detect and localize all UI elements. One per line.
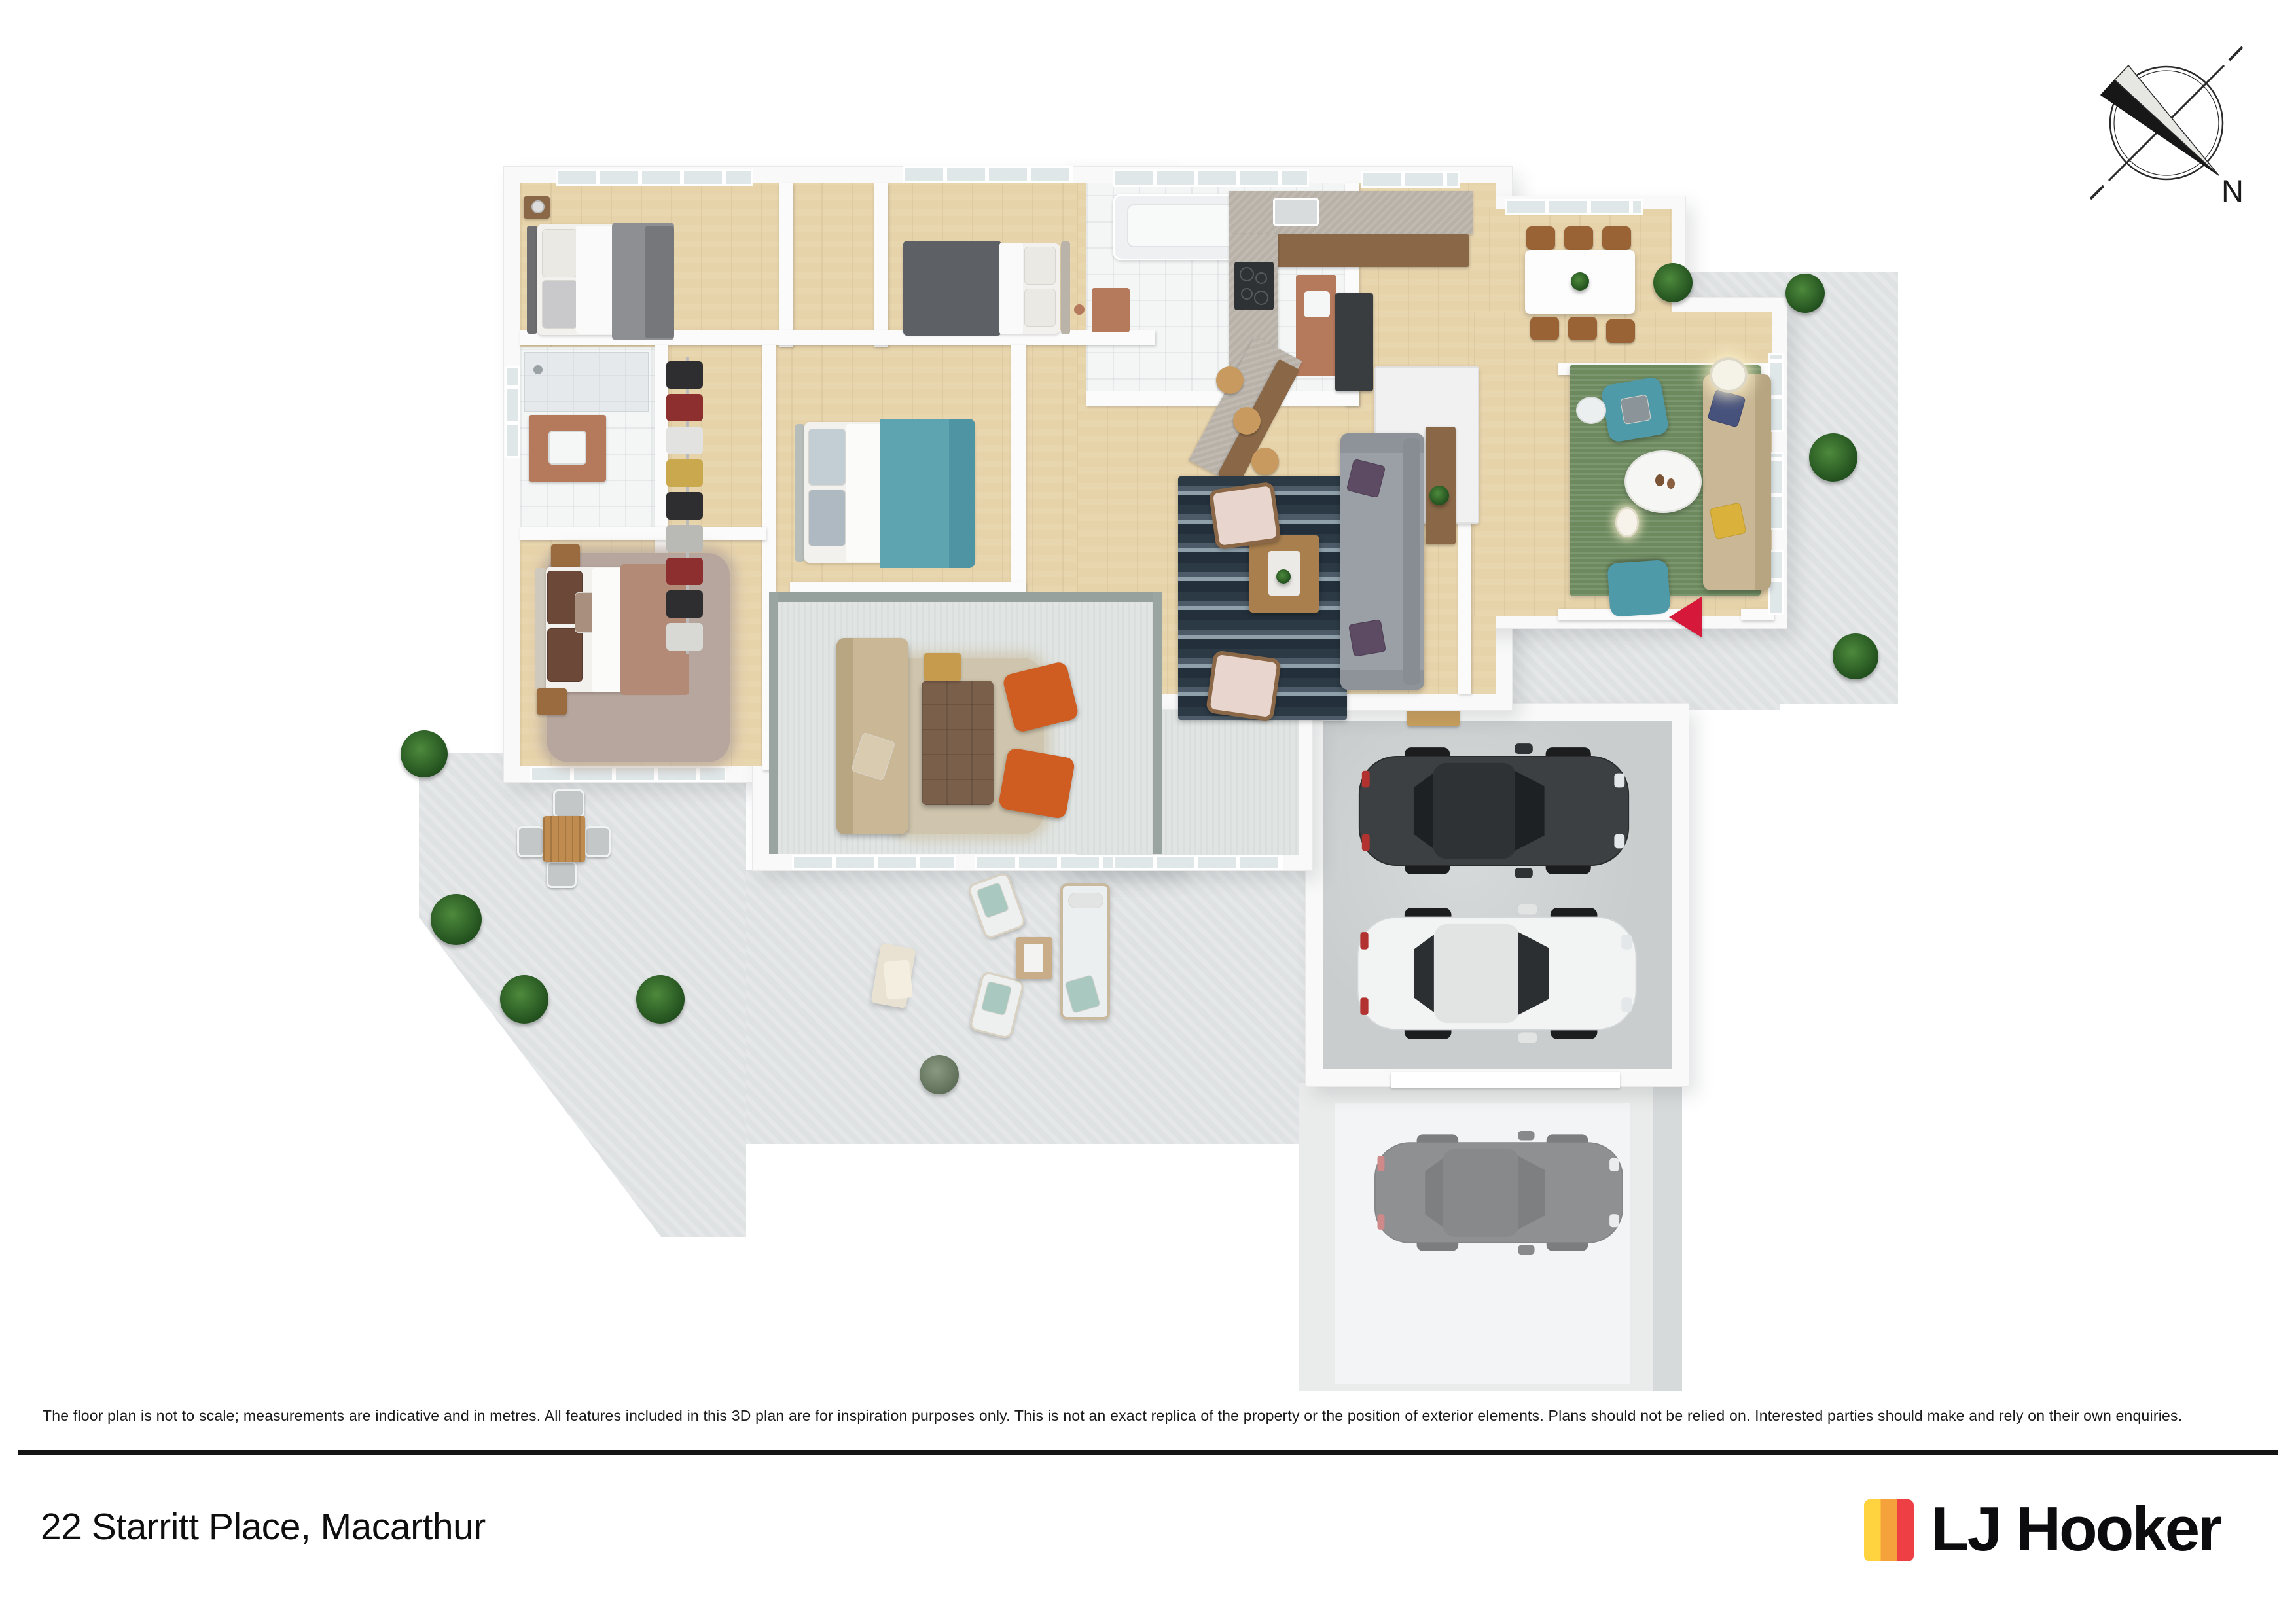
garden-sculpture-top (883, 959, 913, 1000)
throw (645, 226, 674, 338)
patio-table (543, 816, 585, 862)
sunroom-sofa (836, 638, 908, 834)
cooktop (1234, 262, 1274, 310)
shower (524, 352, 649, 412)
pillow-grey (1620, 394, 1651, 425)
window-bed2 (903, 166, 1073, 183)
nightstand-cube (551, 544, 580, 568)
compass-tick-ne (2229, 47, 2242, 60)
garment (666, 558, 703, 585)
wall-bed3-east (1011, 345, 1026, 597)
tray-plant (1276, 569, 1291, 584)
patio-center (746, 870, 1306, 1144)
pillow-purple (1348, 619, 1386, 657)
dining-chair (1602, 226, 1631, 250)
outdoor-coffee-table (1016, 937, 1052, 979)
teal-armchair (1607, 560, 1670, 617)
nightstand-cube (537, 688, 567, 715)
kitchen-sink (1273, 198, 1319, 226)
potted-plant (1653, 263, 1693, 302)
basin (1304, 291, 1330, 317)
pillow (1024, 289, 1056, 327)
bedroom1-bed (520, 193, 691, 344)
round-coffee-table (1624, 450, 1702, 513)
patio-chair (584, 826, 611, 857)
headboard (535, 568, 546, 689)
pillow (542, 229, 577, 277)
duvet-teal-fold (949, 419, 975, 568)
pillow-mint (976, 882, 1009, 919)
pillow-mint (981, 981, 1013, 1016)
table-plant (1571, 272, 1589, 291)
dining-chair (1526, 226, 1555, 250)
pillow-patterned (808, 429, 846, 486)
bar-stool (1216, 366, 1244, 394)
garment (666, 394, 703, 421)
table-tray (1024, 944, 1043, 972)
car-garage-white (1350, 900, 1644, 1047)
car-driveway (1368, 1126, 1630, 1260)
pillow-patterned (808, 490, 846, 546)
pillow-navy (1707, 389, 1746, 427)
dining-chair (1564, 226, 1593, 250)
pillow-brown (547, 628, 583, 682)
family-armchair (1206, 650, 1282, 722)
wall-master-north (520, 527, 766, 540)
bar-stool (1233, 407, 1261, 435)
garment (666, 361, 703, 389)
bedroom3-bed (793, 416, 986, 569)
decor-item (1655, 474, 1664, 486)
family-coffee-table (1249, 535, 1319, 613)
sofa-back (836, 638, 853, 834)
property-address: 22 Starritt Place, Macarthur (41, 1505, 486, 1548)
window-bed1 (556, 169, 753, 186)
potted-plant-grey (920, 1055, 959, 1094)
floorplan-render (0, 0, 2296, 1623)
pillow-yellow (1710, 503, 1747, 540)
kitchen-counter-top (1229, 191, 1473, 234)
pillow (851, 732, 896, 781)
sheet (846, 424, 882, 562)
patio-chair (517, 826, 545, 857)
garment (666, 427, 703, 454)
basin (548, 431, 586, 465)
compass-needle-dark (2101, 80, 2219, 175)
wall-hall-right (874, 183, 888, 347)
potted-plant (1833, 633, 1878, 679)
lj-hooker-logo-text: LJ Hooker (1931, 1493, 2220, 1565)
window-kitchen (1361, 171, 1460, 188)
compass-tick-sw (2090, 186, 2104, 199)
window-west (505, 366, 520, 458)
burner (1241, 288, 1253, 300)
lj-hooker-logo-mark (1864, 1499, 1914, 1561)
sofa-back (1755, 374, 1771, 590)
bedroom2-bed (893, 239, 1090, 337)
garment (666, 525, 703, 552)
ensuite2-vanity (1092, 288, 1130, 332)
dining-chair (1568, 317, 1597, 340)
headboard (527, 226, 537, 334)
dining-chair (1530, 317, 1559, 340)
window-bathroom (1113, 169, 1309, 187)
potted-plant (431, 894, 482, 945)
burner (1255, 272, 1267, 284)
compass: N (2081, 26, 2278, 223)
garment (666, 459, 703, 487)
shower-head (533, 365, 543, 374)
garment (666, 623, 703, 651)
family-sofa (1340, 433, 1424, 690)
console-plant (1429, 486, 1449, 505)
entry-porch (1496, 625, 1780, 710)
burner (1240, 267, 1254, 281)
dining-chair (1606, 319, 1635, 343)
wall-hall-left (779, 183, 793, 347)
window-master (530, 766, 726, 782)
potted-plant (1785, 274, 1825, 313)
outdoor-sofa (1060, 883, 1110, 1020)
disclaimer-text: The floor plan is not to scale; measurem… (43, 1407, 2182, 1425)
orange-armchair (998, 747, 1076, 820)
duvet-dark (903, 241, 1001, 336)
floorplan-page: N The floor plan is not to scale; measur… (0, 0, 2296, 1623)
driveway-edge (1653, 1083, 1682, 1391)
garment (666, 492, 703, 520)
side-table (924, 653, 961, 681)
north-label: N (2221, 173, 2244, 208)
garage-door (1391, 1072, 1620, 1088)
patio-chair (553, 789, 584, 818)
sunroom-ottoman (922, 681, 994, 805)
floor-lamp (1710, 357, 1748, 393)
side-table-round (1576, 397, 1606, 424)
table-lamp (531, 200, 545, 213)
headboard (1061, 241, 1070, 334)
decor-item (1667, 478, 1675, 489)
window-rumpus (1113, 855, 1283, 870)
potted-plant (1809, 433, 1857, 482)
headboard (795, 424, 804, 562)
copper-lamp (1074, 304, 1085, 315)
bar-stool (1251, 448, 1279, 475)
potted-plant (636, 975, 685, 1024)
entry-arrow-marker (1669, 597, 1702, 637)
sheet (576, 226, 615, 334)
potted-plant (401, 730, 448, 777)
window-sunroom-1 (792, 855, 956, 870)
sheet (999, 243, 1023, 334)
wall-sunroom-top-face (769, 592, 1162, 602)
pillow (1024, 247, 1056, 285)
car-garage-dark (1352, 740, 1636, 882)
fridge-tower (1335, 293, 1373, 391)
lantern (1615, 507, 1639, 537)
divider-rule (18, 1450, 2278, 1455)
family-armchair (1208, 481, 1282, 550)
potted-plant (500, 975, 548, 1024)
bolster (1068, 893, 1103, 908)
wall-sunroom-left-face (769, 592, 778, 854)
pillow-mint (1064, 974, 1101, 1014)
pillow-purple (1346, 459, 1386, 499)
wall-sunroom-right-face (1153, 592, 1162, 854)
burner (1254, 291, 1268, 305)
lounge-sofa (1703, 374, 1771, 590)
window-dining (1505, 199, 1643, 215)
garment (666, 590, 703, 618)
sofa-back (1403, 438, 1420, 685)
patio-chair (547, 861, 577, 888)
pillow (542, 280, 577, 329)
teal-armchair (1600, 376, 1670, 444)
